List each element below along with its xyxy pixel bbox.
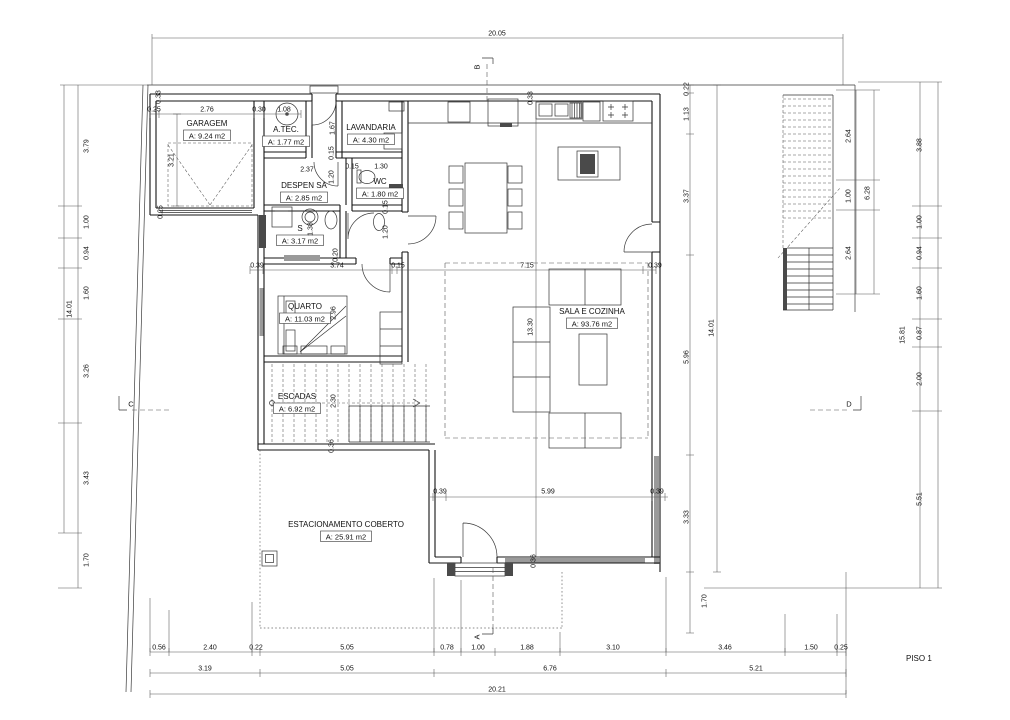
dimension-label: 3.10: [606, 645, 620, 652]
dimension-label: 0.39: [648, 263, 662, 270]
room-label: A.TEC.: [273, 125, 299, 134]
dimension-label: 0.56: [152, 645, 166, 652]
sofa-set: [513, 269, 621, 448]
doors: [312, 101, 652, 557]
dimension-label: 0.94: [917, 246, 924, 260]
dimension-label: 1.60: [84, 286, 91, 300]
bedroom-door: [362, 264, 390, 292]
dimension-label: 0.15: [329, 146, 336, 160]
dimension-label: 0.39: [250, 263, 264, 270]
room-label: DESPEN SA: [281, 181, 327, 190]
dimension-label: 2.64: [846, 246, 853, 260]
dimension-label: 1.00: [84, 215, 91, 229]
dining-table: [449, 163, 522, 233]
dimension-label: 1.08: [277, 107, 291, 114]
dimension-label: 0.25: [834, 645, 848, 652]
dimension-label: 5.99: [541, 489, 555, 496]
kitchen-counter: [408, 99, 652, 180]
column: [262, 551, 277, 566]
entrance-step: [310, 86, 338, 93]
dimension-label: 0.15: [383, 200, 390, 214]
dimension-label: 0.22: [249, 645, 263, 652]
dimension-label: 3.33: [684, 510, 691, 524]
room-area-label: A: 4.30 m2: [353, 136, 389, 145]
room-label: ESTACIONAMENTO COBERTO: [288, 520, 404, 529]
dimension-label: 15.81: [900, 326, 907, 344]
dimension-label: 0.36: [531, 554, 538, 568]
dimension-label: 1.13: [684, 107, 691, 121]
dimension-label: 1.60: [917, 286, 924, 300]
dimension-label: 14.01: [67, 300, 74, 318]
main-entry-door: [463, 523, 497, 557]
fireplace: [580, 154, 595, 174]
dimension-label: 6.28: [865, 186, 872, 200]
coffee-table: [579, 334, 607, 385]
dimension-label: 0.33: [156, 90, 163, 104]
sink: [536, 102, 582, 119]
dimension-label: 0.20: [333, 248, 340, 262]
carport: [260, 450, 562, 628]
radiator: [259, 215, 266, 248]
dimension-label: 1.20: [383, 225, 390, 239]
hall-door: [408, 216, 436, 244]
living-side-door: [624, 224, 652, 252]
section-lines: [119, 58, 861, 634]
dimension-label: 6.76: [543, 666, 557, 673]
dimension-label: 0.22: [684, 82, 691, 96]
dimension-label: 3.37: [684, 189, 691, 203]
site-boundary: [126, 85, 855, 692]
dimension-label: 5.51: [917, 492, 924, 506]
section-marker-labels: ABCD: [128, 64, 852, 639]
dimension-label: 1.38: [308, 222, 315, 236]
dimension-label: 7.15: [520, 263, 534, 270]
dimension-label: 1.00: [846, 189, 853, 203]
washer-s: [272, 207, 292, 227]
fridge: [488, 99, 518, 126]
dimension-label: 2.37: [300, 167, 314, 174]
stove: [603, 101, 633, 121]
dimension-label: 0.94: [84, 246, 91, 260]
dimension-label: 0.25: [158, 205, 165, 219]
dimension-label: 20.05: [488, 31, 506, 38]
dimension-label: 1.00: [471, 645, 485, 652]
dimension-label: 5.21: [749, 666, 763, 673]
dimension-label: 0.39: [650, 489, 664, 496]
room-label: S: [297, 224, 302, 233]
dimension-label: 3.43: [84, 471, 91, 485]
room-label: LAVANDARIA: [346, 123, 396, 132]
dimension-label: 5.05: [340, 666, 354, 673]
room-area-label: A: 2.85 m2: [286, 194, 322, 203]
towel-radiator: [284, 255, 320, 261]
dimension-label: 5.05: [340, 645, 354, 652]
bathroom-door: [348, 213, 374, 239]
exterior-stairs: [778, 95, 840, 310]
room-label: ESCADAS: [278, 392, 316, 401]
room-label: GARAGEM: [187, 119, 228, 128]
dimension-label: 2.30: [331, 394, 338, 408]
entry-steps: [455, 563, 505, 576]
dimension-label: 0.30: [252, 107, 266, 114]
room-area-label: A: 1.77 m2: [268, 138, 304, 147]
dimension-label: 0.36: [329, 439, 336, 453]
dimension-label: 0.39: [433, 489, 447, 496]
section-marker-label: B: [473, 64, 482, 69]
dimension-label: 0.15: [345, 164, 359, 171]
dimension-label: 1.67: [330, 121, 337, 135]
dimension-label: 3.26: [84, 364, 91, 378]
dimension-label: 2.76: [200, 107, 214, 114]
dimension-label: 0.15: [391, 263, 405, 270]
section-marker-label: C: [128, 400, 134, 409]
dimension-label: 1.00: [917, 215, 924, 229]
dimension-label: 2.40: [203, 645, 217, 652]
room-label: WC: [373, 177, 387, 186]
dimension-label: 0.78: [440, 645, 454, 652]
dimension-label: 1.70: [84, 553, 91, 567]
dimension-label: 13.30: [528, 318, 535, 336]
dimension-label: 20.21: [488, 687, 506, 694]
room-area-label: A: 25.91 m2: [326, 533, 366, 542]
room-label: SALA E COZINHA: [559, 307, 625, 316]
room-area-label: A: 9.24 m2: [189, 132, 225, 141]
dimension-label: 2.96: [331, 306, 338, 320]
room-labels: GARAGEMA: 9.24 m2A.TEC.A: 1.77 m2LAVANDA…: [184, 119, 626, 542]
dimension-label: 0.33: [528, 91, 535, 105]
dimension-label: 1.70: [702, 594, 709, 608]
dimension-label: 0.25: [147, 107, 161, 114]
dimension-label: 1.20: [329, 170, 336, 184]
room-area-label: A: 93.76 m2: [572, 320, 612, 329]
section-marker-label: A: [473, 634, 482, 639]
room-label: QUARTO: [288, 302, 322, 311]
drawing-sheet: GARAGEMA: 9.24 m2A.TEC.A: 1.77 m2LAVANDA…: [0, 0, 1010, 720]
room-area-label: A: 11.03 m2: [285, 315, 325, 324]
toilet-s: [325, 211, 337, 229]
dimension-label: 2.64: [846, 129, 853, 143]
dimension-label: 3.46: [718, 645, 732, 652]
section-marker-label: D: [846, 400, 852, 409]
dimension-label: 3.79: [84, 139, 91, 153]
floor-plan-svg: GARAGEMA: 9.24 m2A.TEC.A: 1.77 m2LAVANDA…: [0, 0, 1010, 720]
dimension-label: 1.88: [520, 645, 534, 652]
dimension-label: 3.74: [330, 263, 344, 270]
dimension-label: 1.50: [804, 645, 818, 652]
dimension-label: 3.19: [198, 666, 212, 673]
floor-label: PISO 1: [906, 654, 932, 663]
room-area-label: A: 6.92 m2: [279, 405, 315, 414]
dimension-label: 0.87: [917, 326, 924, 340]
dimension-label: 3.21: [169, 153, 176, 167]
dimension-label: 5.96: [684, 350, 691, 364]
garage-door: [168, 143, 252, 206]
dimension-label: 2.00: [917, 372, 924, 386]
dimension-label: 1.30: [374, 164, 388, 171]
room-area-label: A: 1.80 m2: [362, 190, 398, 199]
dimension-label: 3.88: [917, 138, 924, 152]
room-area-label: A: 3.17 m2: [282, 237, 318, 246]
dimension-label: 14.01: [709, 319, 716, 337]
